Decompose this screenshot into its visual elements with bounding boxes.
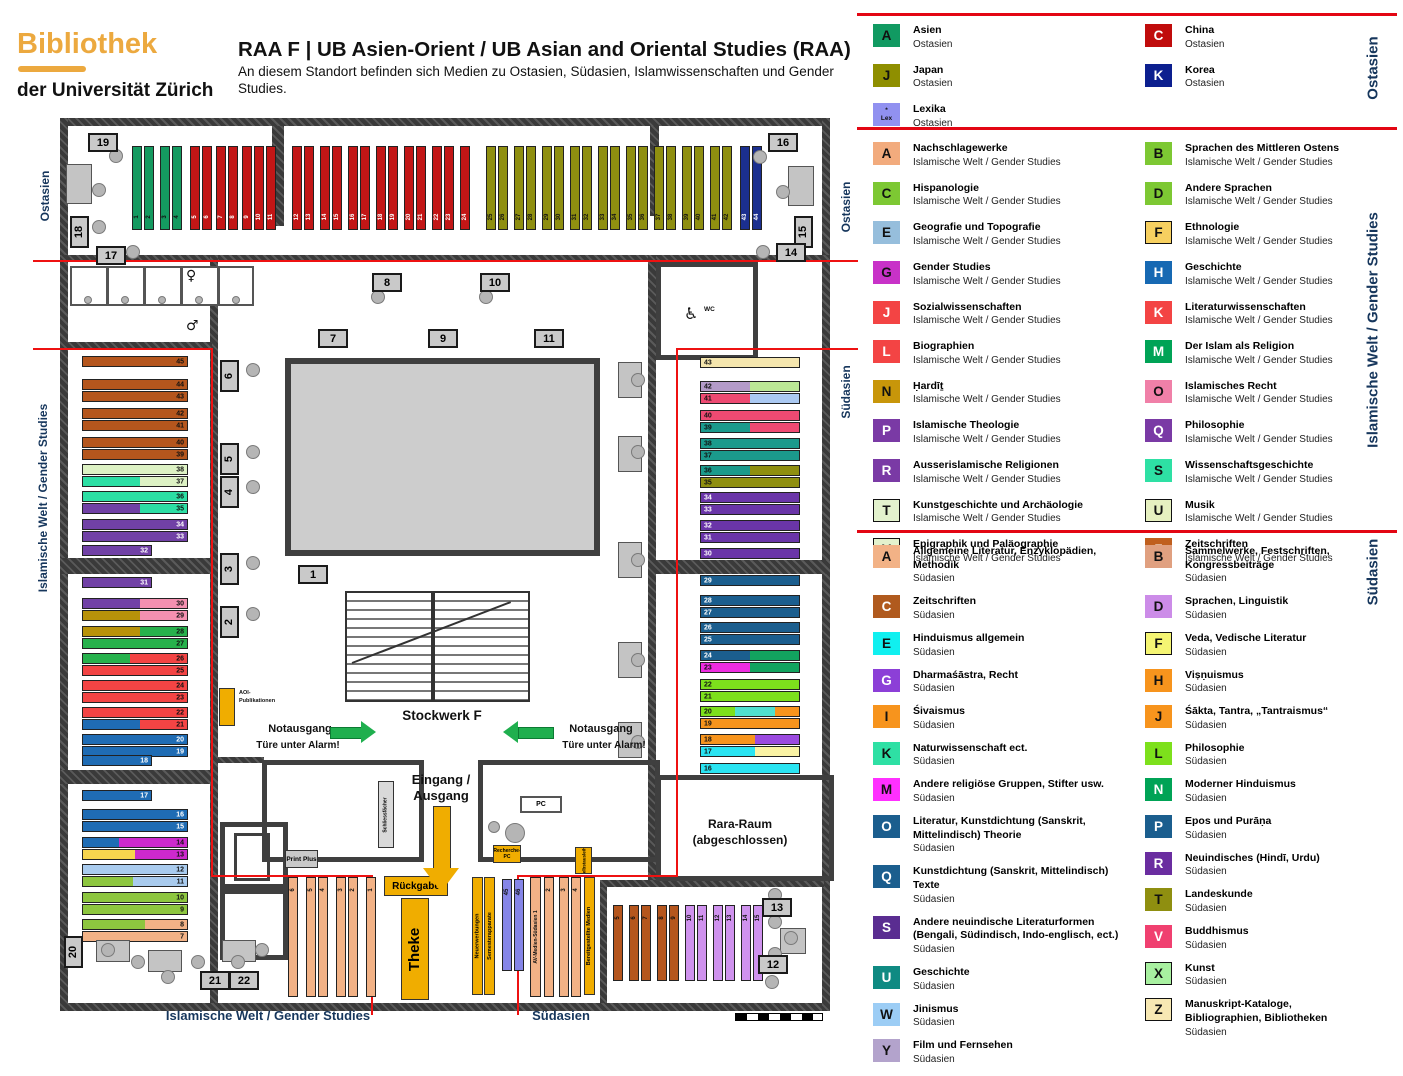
- legend-item-title: Literaturwissenschaften: [1185, 301, 1333, 315]
- legend-item-title: Wissenschaftsgeschichte: [1185, 459, 1333, 473]
- category-tile-B: B: [1145, 142, 1172, 165]
- legend-item: TKunstgeschichte und ArchäologieIslamisc…: [873, 499, 1125, 526]
- chair: [753, 150, 767, 164]
- shelf-28: 28: [82, 626, 188, 637]
- shelf-40: 40: [694, 146, 704, 230]
- legend-item: NḤardīṯIslamische Welt / Gender Studies: [873, 380, 1125, 407]
- wall-left-crossing-2: [60, 770, 212, 784]
- legend-item-text: Gender StudiesIslamische Welt / Gender S…: [913, 261, 1061, 288]
- legend-item-title: Musik: [1185, 499, 1333, 513]
- shelf-segment: [83, 810, 187, 819]
- shelf-33: 33: [700, 504, 800, 515]
- chair: [631, 373, 645, 387]
- chair: [246, 607, 260, 621]
- legend-item-title: Zeitschriften: [913, 595, 976, 609]
- shelf-segment: [83, 492, 187, 501]
- shelf-29: 29: [542, 146, 552, 230]
- shelf-38: 38: [700, 438, 800, 449]
- table-marker-22: 22: [229, 971, 259, 990]
- legend-item-text: Andere religiöse Gruppen, Stifter usw.Sü…: [913, 778, 1104, 805]
- legend-item-title: Lexika: [913, 103, 952, 117]
- wall-bottomstrip-top: [218, 757, 264, 763]
- box-recherche-pc: Recherche-PC: [493, 845, 521, 863]
- legend-item: KNaturwissenschaft ect.Südasien: [873, 742, 1131, 769]
- legend-item-sub: Ostasien: [913, 77, 952, 90]
- shelf-5: 5: [613, 905, 623, 981]
- wall-outer-top: [60, 118, 830, 126]
- shelf-14: 14: [82, 837, 188, 848]
- zone-boundary-line: [33, 348, 213, 350]
- legend-item-text: Sammelwerke, Festschriften, Kongressbeit…: [1185, 545, 1367, 585]
- shelf-segment: [775, 707, 800, 716]
- legend-item-sub: Südasien: [913, 943, 1131, 956]
- legend-item-sub: Islamische Welt / Gender Studies: [913, 195, 1061, 208]
- shelf-8: 8: [82, 919, 188, 930]
- shelf-32: 32: [82, 545, 152, 556]
- shelf-33: 33: [598, 146, 608, 230]
- shelf-16: 16: [700, 763, 800, 774]
- shelf-19: 19: [388, 146, 398, 230]
- table: [66, 164, 92, 204]
- shelf-segment: [83, 877, 133, 886]
- shelf-segment: [83, 477, 140, 486]
- legend-item-sub: Islamische Welt / Gender Studies: [1185, 275, 1333, 288]
- shelf-4: 4: [172, 146, 182, 230]
- category-tile-T: T: [873, 499, 900, 522]
- shelf-16: 16: [82, 809, 188, 820]
- box-bereitgestellte-medien: Bereitgestellte Medien: [584, 877, 595, 995]
- shelf-25: 25: [486, 146, 496, 230]
- legend-item-sub: Südasien: [913, 609, 976, 622]
- shelf-6: 6: [629, 905, 639, 981]
- shelf-20: 20: [700, 706, 800, 717]
- shelf-segment: [83, 532, 187, 541]
- category-tile-J: J: [873, 301, 900, 324]
- shelf-17: 17: [82, 790, 152, 801]
- shelf-segment: [83, 905, 187, 914]
- legend-item-text: Kunstdichtung (Sanskrit, Mittelindisch) …: [913, 865, 1131, 905]
- shelf-segment: [83, 639, 187, 648]
- shelf-segment: [83, 421, 187, 430]
- category-tile-Y: Y: [873, 1039, 900, 1062]
- shelf-23: 23: [700, 662, 800, 673]
- legend-item-sub: Südasien: [1185, 902, 1253, 915]
- legend-item-text: PhilosophieSüdasien: [1185, 742, 1245, 769]
- legend-item-text: NachschlagewerkeIslamische Welt / Gender…: [913, 142, 1061, 169]
- legend-item: CChinaOstasien: [1145, 24, 1355, 51]
- aoi-label: AOI-Publikationen: [239, 690, 283, 705]
- legend-item-title: Sozialwissenschaften: [913, 301, 1061, 315]
- legend-item-sub: Südasien: [1185, 572, 1367, 585]
- box-selbstausleihe: Selbstausleihe: [575, 847, 592, 874]
- shelf-segment: [83, 920, 145, 929]
- wc-label: WC: [704, 306, 715, 313]
- shelf-36: 36: [700, 465, 800, 476]
- legend-item-text: SozialwissenschaftenIslamische Welt / Ge…: [913, 301, 1061, 328]
- shelf-28: 28: [526, 146, 536, 230]
- shelf-segment: [701, 439, 799, 448]
- wall-right-crossing: [656, 560, 830, 574]
- legend-item-sub: Südasien: [1185, 682, 1244, 695]
- shelf-segment: [750, 663, 799, 672]
- legend-item-text: BiographienIslamische Welt / Gender Stud…: [913, 340, 1061, 367]
- category-tile-E: E: [873, 221, 900, 244]
- chair: [246, 480, 260, 494]
- shelf-segment: [83, 520, 187, 529]
- shelf-15: 15: [82, 821, 188, 832]
- shelf-38: 38: [82, 464, 188, 475]
- legend-item: CZeitschriftenSüdasien: [873, 595, 1131, 622]
- category-tile-X: X: [1145, 962, 1172, 985]
- chair: [776, 185, 790, 199]
- legend-item-text: Der Islam als ReligionIslamische Welt / …: [1185, 340, 1333, 367]
- zone-label-ostasien-left: Ostasien: [38, 171, 52, 222]
- legend-item-title: Geografie und Topografie: [913, 221, 1061, 235]
- legend-item-sub: Südasien: [1185, 829, 1271, 842]
- legend-ostasien-col1: AAsienOstasienJJapanOstasien* LexLexikaO…: [873, 24, 1123, 143]
- category-tile-O: O: [873, 815, 900, 838]
- legend-item: UGeschichteSüdasien: [873, 966, 1131, 993]
- shelf-37: 37: [700, 450, 800, 461]
- legend-item-title: Korea: [1185, 64, 1224, 78]
- shelf-3: 3: [336, 877, 346, 997]
- legend-item: KLiteraturwissenschaftenIslamische Welt …: [1145, 301, 1363, 328]
- table-marker-11: 11: [534, 329, 564, 348]
- shelf-segment: [701, 608, 799, 617]
- notausgang-left-arrow: [330, 727, 362, 739]
- shelf-4: 4: [318, 877, 328, 997]
- legend-item-title: Hinduismus allgemein: [913, 632, 1024, 646]
- shelf-29: 29: [700, 575, 800, 586]
- category-tile-F: F: [1145, 632, 1172, 655]
- shelf-41: 41: [710, 146, 720, 230]
- legend-item: FVeda, Vedische LiteraturSüdasien: [1145, 632, 1367, 659]
- table-marker-21: 21: [200, 971, 230, 990]
- shelf-35: 35: [700, 477, 800, 488]
- legend-item-title: Geschichte: [913, 966, 970, 980]
- category-tile-A: A: [873, 545, 900, 568]
- category-tile-S: S: [873, 916, 900, 939]
- category-tile-Lex: * Lex: [873, 103, 900, 126]
- shelf-segment: [83, 611, 140, 620]
- legend-item: MAndere religiöse Gruppen, Stifter usw.S…: [873, 778, 1131, 805]
- category-tile-U: U: [873, 966, 900, 989]
- shelf-10: 10: [254, 146, 264, 230]
- wall-bottomright-top: [600, 880, 824, 887]
- shelf-12: 12: [713, 905, 723, 981]
- legend-item-text: ViṣṇuismusSüdasien: [1185, 669, 1244, 696]
- shelf-segment: [750, 466, 799, 475]
- legend-item-text: EthnologieIslamische Welt / Gender Studi…: [1185, 221, 1333, 248]
- legend-item-sub: Ostasien: [913, 38, 952, 51]
- shelf-7: 7: [216, 146, 226, 230]
- legend-item-title: Biographien: [913, 340, 1061, 354]
- shelf-9: 9: [242, 146, 252, 230]
- category-tile-F: F: [1145, 221, 1172, 244]
- shelf-13: 13: [725, 905, 735, 981]
- category-tile-A: A: [873, 142, 900, 165]
- notausgang-left-arrowhead: [361, 721, 376, 743]
- shelf-18: 18: [82, 755, 152, 766]
- legend-item-sub: Islamische Welt / Gender Studies: [913, 314, 1061, 327]
- legend-item-title: China: [1185, 24, 1224, 38]
- category-tile-N: N: [1145, 778, 1172, 801]
- legend-item-text: Ausserislamische ReligionenIslamische We…: [913, 459, 1061, 486]
- legend-item-sub: Südasien: [1185, 609, 1288, 622]
- shelf-segment: [83, 504, 140, 513]
- table-marker-14: 14: [776, 243, 806, 262]
- shelf-12: 12: [82, 864, 188, 875]
- rara-label-line1: Rara-Raum: [667, 817, 813, 831]
- wall-bottomright-left: [600, 880, 607, 1003]
- shelf-13: 13: [304, 146, 314, 230]
- legend-item-text: LiteraturwissenschaftenIslamische Welt /…: [1185, 301, 1333, 328]
- shelf-37: 37: [82, 476, 188, 487]
- shelf-30: 30: [700, 548, 800, 559]
- eingang-arrowhead: [423, 868, 459, 892]
- shelf-21: 21: [700, 691, 800, 702]
- shelf-segment: [83, 666, 187, 675]
- legend-item-title: Sammelwerke, Festschriften, Kongressbeit…: [1185, 545, 1367, 572]
- shelf-25: 25: [700, 634, 800, 645]
- legend-item-sub: Ostasien: [1185, 77, 1224, 90]
- legend-item: TLandeskundeSüdasien: [1145, 888, 1367, 915]
- shelf-2: 2: [144, 146, 154, 230]
- category-tile-K: K: [1145, 301, 1172, 324]
- shelf-22: 22: [700, 679, 800, 690]
- legend-item-sub: Südasien: [913, 1053, 1013, 1066]
- shelf-segment: [83, 720, 140, 729]
- shelf-segment: [83, 627, 140, 636]
- legend-item-title: Dharmaśāstra, Recht: [913, 669, 1018, 683]
- legend-item-title: Ḥardīṯ: [913, 380, 1061, 394]
- legend-item-text: PhilosophieIslamische Welt / Gender Stud…: [1185, 419, 1333, 446]
- legend-item-sub: Südasien: [913, 719, 965, 732]
- zone-boundary-line: [676, 348, 678, 877]
- legend-item-title: Ausserislamische Religionen: [913, 459, 1061, 473]
- shelf-30: 30: [82, 598, 188, 609]
- legend-item: RAusserislamische ReligionenIslamische W…: [873, 459, 1125, 486]
- shelf-9: 9: [669, 905, 679, 981]
- legend-item: JJapanOstasien: [873, 64, 1123, 91]
- legend-item-sub: Islamische Welt / Gender Studies: [913, 235, 1061, 248]
- shelf-24: 24: [700, 650, 800, 661]
- legend-ostasien-col2: CChinaOstasienKKoreaOstasien: [1145, 24, 1355, 103]
- shelf-34: 34: [610, 146, 620, 230]
- shelf-8: 8: [228, 146, 238, 230]
- chair: [121, 296, 129, 304]
- legend-item-sub: Islamische Welt / Gender Studies: [1185, 433, 1333, 446]
- shelf-segment: [701, 764, 799, 773]
- legend-item-title: Kunstdichtung (Sanskrit, Mittelindisch) …: [913, 865, 1131, 892]
- legend-item-title: Hispanologie: [913, 182, 1061, 196]
- shelf-40: 40: [82, 437, 188, 448]
- shelf-31: 31: [570, 146, 580, 230]
- legend-item-title: Śākta, Tantra, „Tantraismus“: [1185, 705, 1328, 719]
- legend-item-sub: Südasien: [913, 1016, 959, 1029]
- legend-item-text: Geografie und TopografieIslamische Welt …: [913, 221, 1061, 248]
- legend-item: CHispanologieIslamische Welt / Gender St…: [873, 182, 1125, 209]
- legend-item-sub: Südasien: [913, 572, 1131, 585]
- legend-suedasien-col2: BSammelwerke, Festschriften, Kongressbei…: [1145, 545, 1367, 1049]
- legend-item-text: ChinaOstasien: [1185, 24, 1224, 51]
- shelf-31: 31: [700, 532, 800, 543]
- zone-boundary-line: [211, 348, 213, 877]
- shelf-7: 7: [641, 905, 651, 981]
- legend-item-title: Nachschlagewerke: [913, 142, 1061, 156]
- category-tile-G: G: [873, 669, 900, 692]
- zone-label-suedasien-right: Südasien: [839, 365, 853, 418]
- legend-item-text: Literatur, Kunstdichtung (Sanskrit, Mitt…: [913, 815, 1131, 855]
- legend-item: ZManuskript-Kataloge, Bibliographien, Bi…: [1145, 998, 1367, 1038]
- legend-item-title: Andere Sprachen: [1185, 182, 1333, 196]
- legend-item-title: Gender Studies: [913, 261, 1061, 275]
- table: [788, 166, 814, 206]
- box-neuerwerbungen: Neuerwerbungen: [472, 877, 483, 995]
- inner-courtyard: [285, 358, 600, 556]
- legend-item-sub: Islamische Welt / Gender Studies: [913, 275, 1061, 288]
- legend-item-sub: Südasien: [913, 842, 1131, 855]
- legend-item-sub: Ostasien: [1185, 38, 1224, 51]
- chair: [158, 296, 166, 304]
- shelf-segment: [83, 681, 187, 690]
- legend-item-title: Japan: [913, 64, 952, 78]
- category-tile-E: E: [873, 632, 900, 655]
- legend-item: * LexLexikaOstasien: [873, 103, 1123, 130]
- notausgang-right-alarm: Türe unter Alarm!: [552, 740, 656, 751]
- category-tile-C: C: [873, 595, 900, 618]
- legend-item: HGeschichteIslamische Welt / Gender Stud…: [1145, 261, 1363, 288]
- shelf-11: 11: [697, 905, 707, 981]
- legend-item-sub: Islamische Welt / Gender Studies: [913, 393, 1061, 406]
- elevator-car: [234, 833, 270, 881]
- legend-item-text: Epos und PurāṇaSüdasien: [1185, 815, 1271, 842]
- legend-item-text: Neuindisches (Hindī, Urdu)Südasien: [1185, 852, 1320, 879]
- legend-item-title: Kunst: [1185, 962, 1227, 976]
- legend-item-text: MusikIslamische Welt / Gender Studies: [1185, 499, 1333, 526]
- shelf-45: 45: [82, 356, 188, 367]
- shelf-44: 44: [82, 379, 188, 390]
- shelf-1: 1: [366, 877, 376, 997]
- shelf-segment: [83, 438, 187, 447]
- shelf-segment: [83, 708, 187, 717]
- legend-item-text: WissenschaftsgeschichteIslamische Welt /…: [1185, 459, 1333, 486]
- box-semesterapparate: Semesterapparate: [484, 877, 495, 995]
- shelf-42: 42: [700, 381, 800, 392]
- rara-label-line2: (abgeschlossen): [667, 833, 813, 847]
- shelf-34: 34: [700, 492, 800, 503]
- legend-item: IŚivaismusSüdasien: [873, 705, 1131, 732]
- shelf-39: 39: [682, 146, 692, 230]
- legend-item-sub: Südasien: [913, 893, 1131, 906]
- legend-item-text: KoreaOstasien: [1185, 64, 1224, 91]
- legend-item-text: Sprachen, LinguistikSüdasien: [1185, 595, 1288, 622]
- shelf-16: 16: [348, 146, 358, 230]
- legend-side-label-islam: Islamische Welt / Gender Studies: [1365, 212, 1382, 448]
- shelf-segment: [83, 893, 187, 902]
- shelf-43: 43: [740, 146, 750, 230]
- category-tile-G: G: [873, 261, 900, 284]
- stockwerk-label: Stockwerk F: [392, 708, 492, 723]
- shelf-20: 20: [82, 734, 188, 745]
- shelf-39: 39: [82, 449, 188, 460]
- table-marker-7: 7: [318, 329, 348, 348]
- category-tile-I: I: [873, 705, 900, 728]
- shelf-segment: [701, 576, 799, 585]
- legend-item-title: Viṣṇuismus: [1185, 669, 1244, 683]
- table-marker-17: 17: [96, 246, 126, 265]
- shelf-35: 35: [626, 146, 636, 230]
- legend-item: VBuddhismusSüdasien: [1145, 925, 1367, 952]
- legend-item: FEthnologieIslamische Welt / Gender Stud…: [1145, 221, 1363, 248]
- category-tile-H: H: [1145, 261, 1172, 284]
- chair: [784, 931, 798, 945]
- shelf-37: 37: [654, 146, 664, 230]
- legend-item: KKoreaOstasien: [1145, 64, 1355, 91]
- shelf-10: 10: [685, 905, 695, 981]
- legend-suedasien-col1: AAllgemeine Literatur, Enzyklopädien, Me…: [873, 545, 1131, 1076]
- table-marker-4: 4: [220, 476, 239, 508]
- shelf-34: 34: [82, 519, 188, 530]
- legend-item-text: Moderner HinduismusSüdasien: [1185, 778, 1296, 805]
- legend-item: LPhilosophieSüdasien: [1145, 742, 1367, 769]
- shelf-21: 21: [416, 146, 426, 230]
- chair: [232, 296, 240, 304]
- table-marker-10: 10: [480, 273, 510, 292]
- legend-item: BSammelwerke, Festschriften, Kongressbei…: [1145, 545, 1367, 585]
- shelf-segment: [83, 735, 187, 744]
- legend-item-title: Philosophie: [1185, 742, 1245, 756]
- legend-item-sub: Südasien: [1185, 755, 1245, 768]
- chair: [631, 653, 645, 667]
- legend-item: AAllgemeine Literatur, Enzyklopädien, Me…: [873, 545, 1131, 585]
- shelf-4: 4: [571, 877, 581, 997]
- shelf-8: 8: [657, 905, 667, 981]
- legend-item: ANachschlagewerkeIslamische Welt / Gende…: [873, 142, 1125, 169]
- shelf-26: 26: [700, 622, 800, 633]
- category-tile-P: P: [873, 419, 900, 442]
- shelf-segment: [83, 380, 187, 389]
- legend-item-text: LexikaOstasien: [913, 103, 952, 130]
- shelf-segment: [701, 358, 799, 367]
- chair: [246, 556, 260, 570]
- shelf-segment: [701, 596, 799, 605]
- legend-islam-col1: ANachschlagewerkeIslamische Welt / Gende…: [873, 142, 1125, 578]
- shelf-5: 5: [190, 146, 200, 230]
- shelf-segment: [83, 693, 187, 702]
- category-tile-J: J: [1145, 705, 1172, 728]
- shelf-41: 41: [700, 393, 800, 404]
- legend-item-text: Allgemeine Literatur, Enzyklopädien, Met…: [913, 545, 1131, 585]
- legend-item-text: JinismusSüdasien: [913, 1003, 959, 1030]
- shelf-10: 10: [82, 892, 188, 903]
- legend-item-title: Kunstgeschichte und Archäologie: [913, 499, 1083, 513]
- shelf-segment: [701, 521, 799, 530]
- legend-item-title: Ethnologie: [1185, 221, 1333, 235]
- legend-item-text: AsienOstasien: [913, 24, 952, 51]
- legend-item-sub: Islamische Welt / Gender Studies: [1185, 473, 1333, 486]
- legend-item: JSozialwissenschaftenIslamische Welt / G…: [873, 301, 1125, 328]
- shelf-segment: [750, 382, 799, 391]
- category-tile-Q: Q: [1145, 419, 1172, 442]
- shelf-33: 33: [82, 531, 188, 542]
- legend-item: DAndere SprachenIslamische Welt / Gender…: [1145, 182, 1363, 209]
- chair: [756, 245, 770, 259]
- legend-item-text: Śākta, Tantra, „Tantraismus“Südasien: [1185, 705, 1328, 732]
- chair: [191, 955, 205, 969]
- table-marker-12: 12: [758, 955, 788, 974]
- legend-item-sub: Südasien: [1185, 865, 1320, 878]
